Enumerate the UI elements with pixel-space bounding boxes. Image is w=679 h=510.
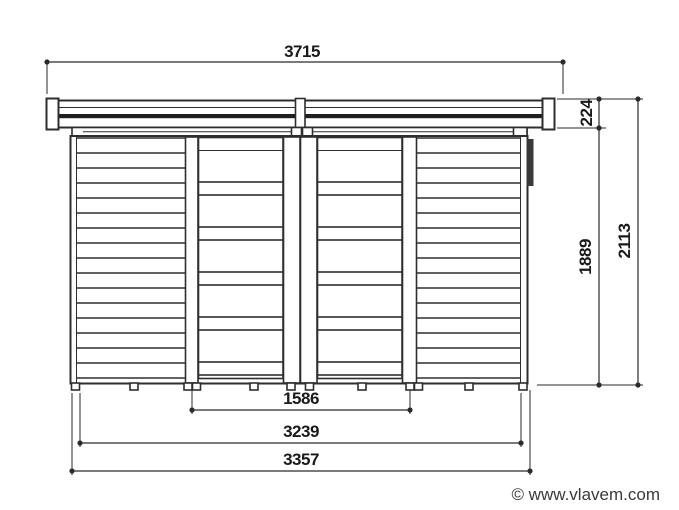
right-door-meeting-stile	[301, 137, 318, 383]
dim-label-total-height: 2113	[615, 224, 634, 259]
right-door-outer-stile	[403, 137, 417, 383]
dimension-roof-height: 224	[557, 96, 643, 130]
roof-center-joint	[296, 99, 306, 129]
dim-label-wall-height: 1889	[576, 239, 595, 275]
roof	[47, 99, 555, 130]
roof-right-cap	[543, 99, 555, 130]
left-door-panel	[199, 138, 284, 379]
shed-elevation-drawing: 3715 224 1889 2113 1586 3	[0, 0, 679, 510]
copyright-text: © www.vlavem.com	[511, 485, 660, 504]
dimension-wall-height: 1889	[576, 128, 602, 388]
double-doors	[186, 137, 417, 383]
dim-label-base-inner-width: 3239	[283, 422, 319, 441]
dim-label-roof-width: 3715	[284, 42, 320, 61]
left-door-outer-stile	[186, 137, 199, 383]
dim-label-roof-height: 224	[577, 99, 596, 127]
technical-drawing-page: 3715 224 1889 2113 1586 3	[0, 0, 679, 510]
right-door-panel	[318, 138, 403, 379]
dimension-door-width: 1586	[189, 389, 412, 414]
left-door-meeting-stile	[284, 137, 301, 383]
corner-shadow-strip	[527, 139, 534, 186]
roof-left-cap	[47, 99, 59, 130]
dimension-roof-width: 3715	[44, 42, 565, 94]
dim-label-base-outer-width: 3357	[283, 450, 319, 469]
dim-label-door-width: 1586	[283, 389, 319, 408]
